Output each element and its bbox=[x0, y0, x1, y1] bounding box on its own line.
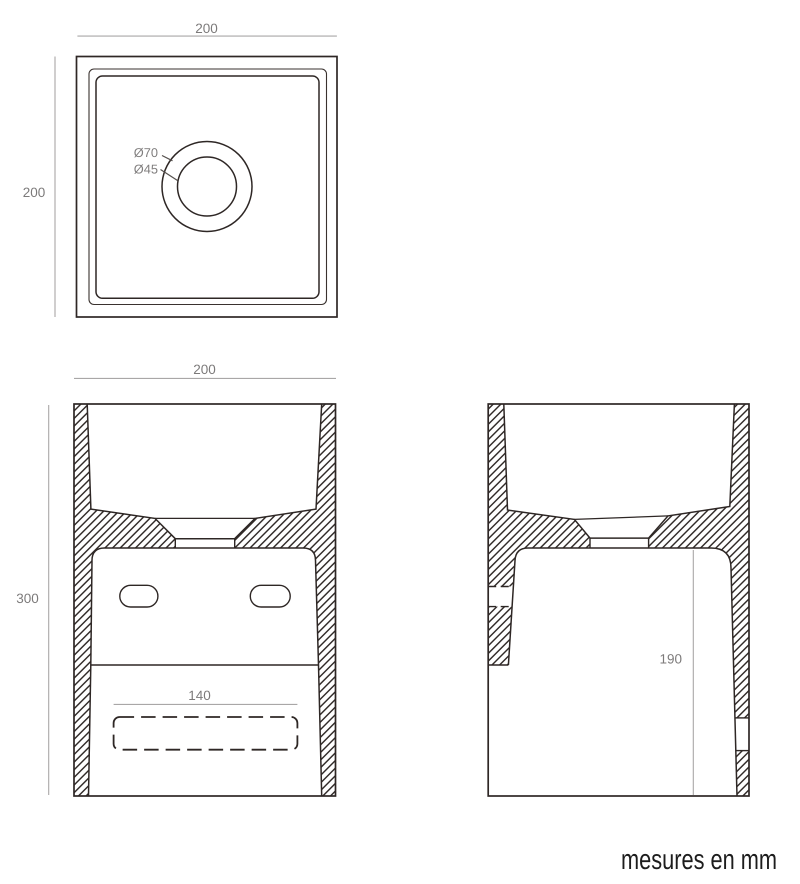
svg-text:140: 140 bbox=[188, 688, 211, 703]
svg-text:200: 200 bbox=[193, 362, 216, 377]
svg-text:200: 200 bbox=[195, 21, 218, 36]
svg-text:200: 200 bbox=[23, 185, 46, 200]
svg-text:300: 300 bbox=[16, 591, 39, 606]
svg-text:Ø70: Ø70 bbox=[134, 145, 158, 160]
svg-text:Ø45: Ø45 bbox=[134, 162, 158, 177]
svg-text:mesures en mm: mesures en mm bbox=[621, 844, 777, 875]
svg-text:190: 190 bbox=[659, 652, 682, 667]
